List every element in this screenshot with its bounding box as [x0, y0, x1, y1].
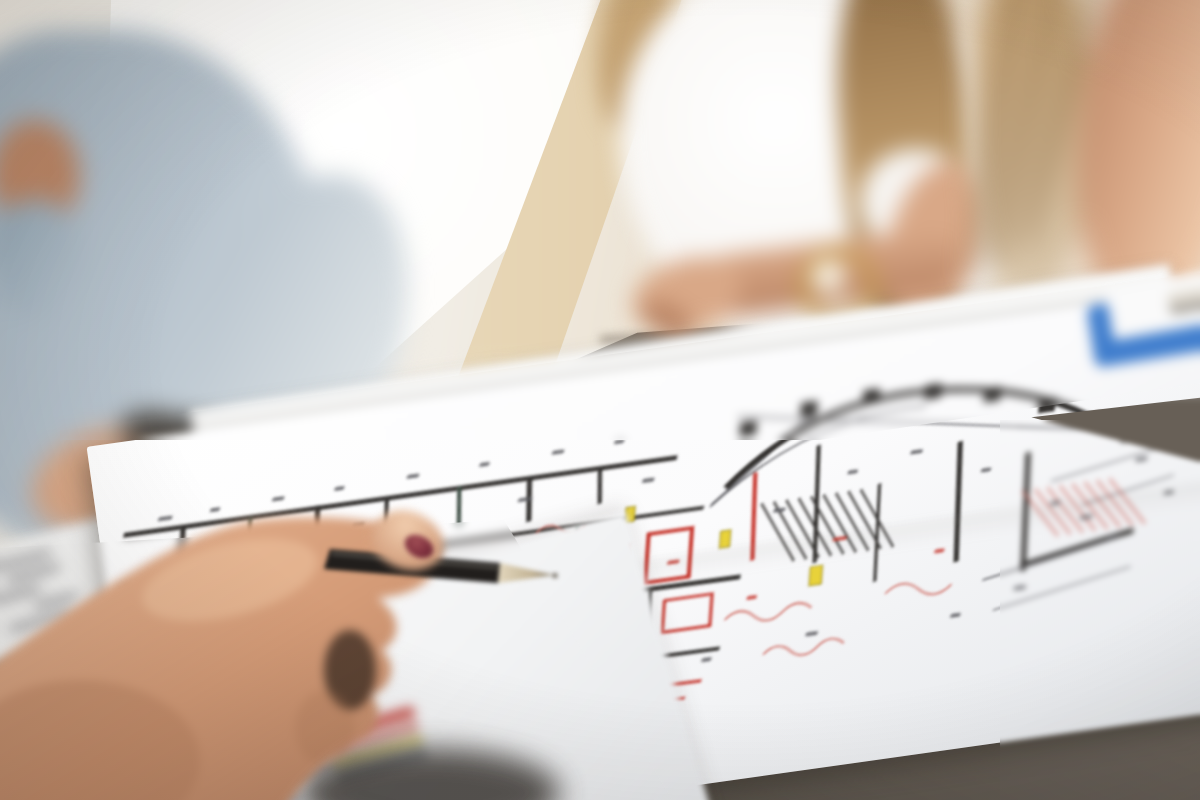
plan-rect: [1084, 411, 1102, 427]
plan-line: [1083, 475, 1173, 504]
plan-path: [724, 601, 812, 626]
plan-rect: [934, 548, 945, 553]
plan-rect: [552, 449, 565, 454]
plan-line: [712, 412, 816, 504]
plan-line: [873, 485, 882, 581]
plan-rect: [984, 386, 1002, 402]
plan-rect: [910, 449, 923, 454]
plan-line: [734, 362, 1127, 485]
plan-rect: [614, 439, 625, 444]
plan-rect: [847, 469, 858, 474]
plan-line: [1056, 480, 1099, 536]
plan-rect: [1121, 426, 1139, 442]
plan-line: [1106, 473, 1149, 529]
plan-rect: [924, 383, 942, 399]
pen-point: [552, 573, 557, 578]
plan-rect: [1135, 456, 1148, 461]
plan-path: [763, 637, 845, 661]
plan-rect: [863, 388, 881, 404]
plan-line: [749, 474, 758, 559]
foreground-hand: [0, 460, 710, 800]
plan-line: [1031, 484, 1074, 540]
photo-plan-review-meeting: [0, 0, 1200, 800]
plan-line: [1052, 447, 1161, 481]
plan-rect: [739, 420, 757, 436]
plan-line: [1020, 454, 1031, 569]
plan-line: [1081, 477, 1124, 533]
plan-rect: [1013, 585, 1026, 590]
plan-rect: [1164, 490, 1175, 495]
plan-line: [1044, 482, 1087, 538]
gold-watch-face: [812, 260, 846, 294]
plan-line: [952, 443, 964, 560]
plan-line: [1069, 478, 1112, 534]
plan-rect: [981, 467, 992, 472]
plan-line: [1093, 475, 1136, 531]
finger-crease-2: [295, 690, 355, 766]
plan-rect: [1050, 500, 1061, 505]
pen-tip: [498, 563, 554, 583]
plan-rect: [719, 530, 731, 548]
plan-rect: [800, 401, 818, 417]
plan-rect: [805, 631, 818, 636]
plan-path: [726, 364, 1117, 488]
plan-line: [983, 537, 1119, 580]
plan-rect: [1038, 397, 1056, 413]
plan-path: [885, 577, 952, 601]
plan-rect: [950, 613, 961, 618]
plan-rect: [809, 565, 823, 585]
plan-rect: [746, 595, 757, 600]
